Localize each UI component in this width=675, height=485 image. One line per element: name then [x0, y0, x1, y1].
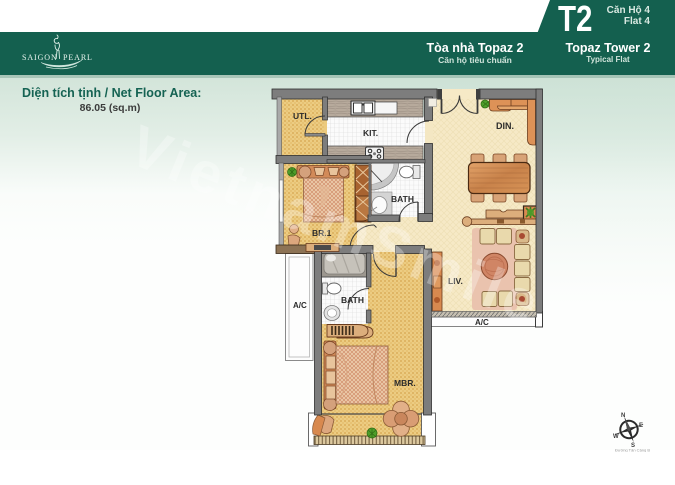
- svg-text:N: N: [621, 413, 625, 419]
- svg-text:UTL.: UTL.: [293, 111, 312, 121]
- svg-text:E: E: [639, 423, 643, 429]
- svg-text:W: W: [613, 434, 619, 440]
- svg-text:KIT.: KIT.: [363, 128, 378, 138]
- svg-text:BATH: BATH: [391, 194, 414, 204]
- svg-text:DIN.: DIN.: [496, 121, 514, 131]
